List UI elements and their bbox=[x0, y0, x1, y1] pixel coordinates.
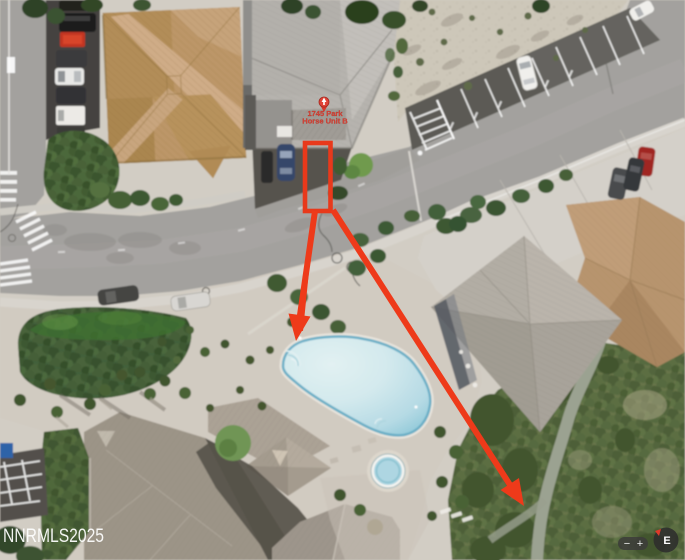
svg-text:NNRMLS2025: NNRMLS2025 bbox=[3, 526, 104, 547]
svg-text:Horse Unit B: Horse Unit B bbox=[302, 117, 348, 126]
svg-text:−: − bbox=[624, 538, 630, 550]
svg-text:+: + bbox=[637, 538, 643, 550]
svg-text:E: E bbox=[663, 535, 670, 547]
